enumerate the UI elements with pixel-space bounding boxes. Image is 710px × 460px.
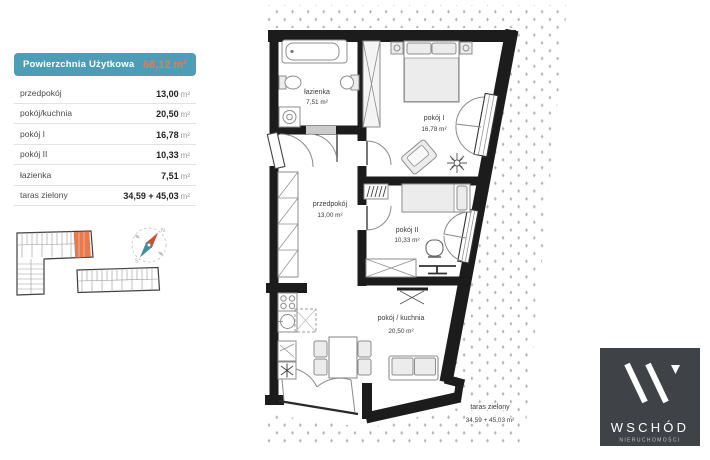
terrace-label: taras zielony bbox=[470, 404, 510, 411]
room2-area: 10,33 m² bbox=[394, 237, 419, 244]
room1-area: 16,78 m² bbox=[421, 126, 446, 133]
room2-closet bbox=[366, 259, 416, 277]
terrace-area: 34,59 + 45,03 m² bbox=[466, 417, 515, 424]
kitchen-area: 20,50 m² bbox=[388, 328, 413, 335]
bathtub bbox=[282, 40, 347, 63]
toilet bbox=[279, 76, 301, 89]
page: { "panel": { "header": {"title": "Powier… bbox=[0, 0, 710, 460]
kitchen-sink bbox=[278, 311, 297, 332]
hallway-label: przedpokój bbox=[313, 201, 348, 208]
hallway-area: 13,00 m² bbox=[317, 212, 342, 219]
brand-logo: WSCHÓD NIERUCHOMOŚCI bbox=[600, 348, 700, 446]
double-bed bbox=[404, 41, 459, 102]
fridge bbox=[278, 341, 296, 361]
hanging-wardrobe bbox=[364, 184, 388, 199]
logo-brand-text: WSCHÓD bbox=[611, 420, 689, 435]
nightstand bbox=[391, 42, 403, 54]
plant-icon bbox=[447, 153, 467, 173]
kitchen-label: pokój / kuchnia bbox=[378, 315, 425, 322]
freezer-snowflake-icon bbox=[278, 362, 296, 379]
washing-machine bbox=[279, 107, 300, 127]
nightstand bbox=[460, 42, 472, 54]
room2-label: pokój II bbox=[396, 227, 419, 234]
sink bbox=[341, 75, 360, 90]
single-bed bbox=[402, 184, 470, 212]
sofa bbox=[389, 356, 438, 380]
hallway-furniture bbox=[278, 172, 298, 277]
logo-subtitle-text: NIERUCHOMOŚCI bbox=[619, 436, 680, 444]
room1-label: pokój I bbox=[424, 115, 445, 122]
bathroom-door-threshold bbox=[306, 126, 336, 134]
built-in-wardrobe bbox=[363, 41, 380, 127]
bathroom-label: łazienka bbox=[304, 89, 330, 96]
dining-table bbox=[314, 337, 371, 378]
stove bbox=[278, 293, 297, 311]
hall-wardrobe bbox=[278, 172, 298, 277]
bathroom-area: 7,51 m² bbox=[306, 99, 328, 106]
desk-chair bbox=[426, 240, 443, 257]
